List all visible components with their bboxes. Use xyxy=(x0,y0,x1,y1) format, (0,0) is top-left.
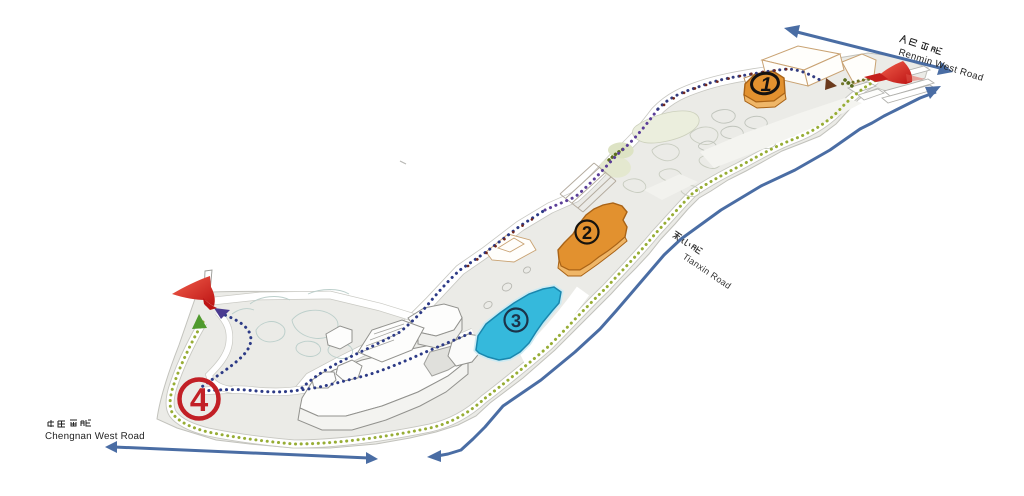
svg-text:Chengnan West Road: Chengnan West Road xyxy=(45,431,145,442)
svg-text:3: 3 xyxy=(511,310,521,331)
svg-text:4: 4 xyxy=(190,381,209,418)
svg-text:2: 2 xyxy=(582,222,592,243)
svg-text:1: 1 xyxy=(760,74,771,96)
svg-text:Tianxin Road: Tianxin Road xyxy=(681,251,733,291)
